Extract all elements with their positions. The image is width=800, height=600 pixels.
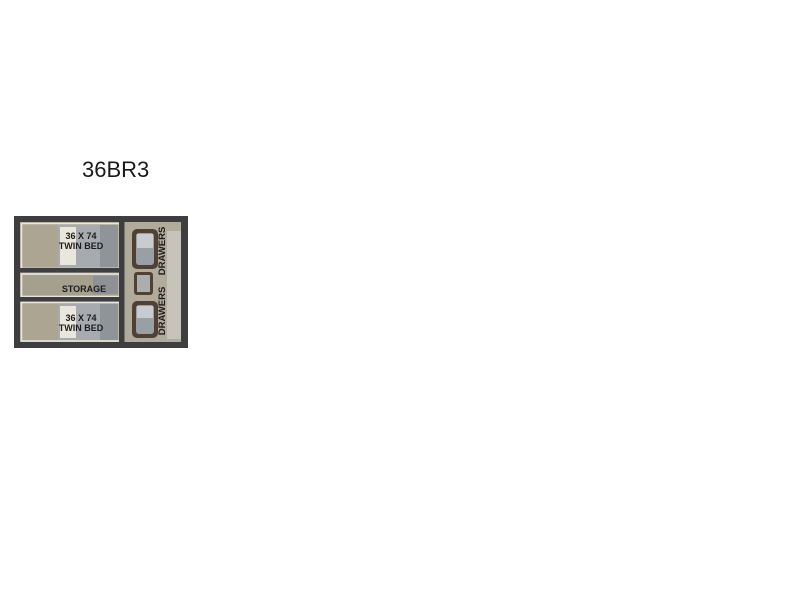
svg-text:STORAGE: STORAGE <box>62 284 106 294</box>
svg-text:36BR3: 36BR3 <box>82 157 149 182</box>
svg-text:36 X 74: 36 X 74 <box>65 231 96 241</box>
svg-text:DRAWERS: DRAWERS <box>157 287 168 336</box>
svg-text:TWIN BED: TWIN BED <box>59 323 104 333</box>
svg-text:TWIN BED: TWIN BED <box>59 241 104 251</box>
svg-text:36 X 74: 36 X 74 <box>65 313 96 323</box>
svg-text:DRAWERS: DRAWERS <box>157 227 168 276</box>
